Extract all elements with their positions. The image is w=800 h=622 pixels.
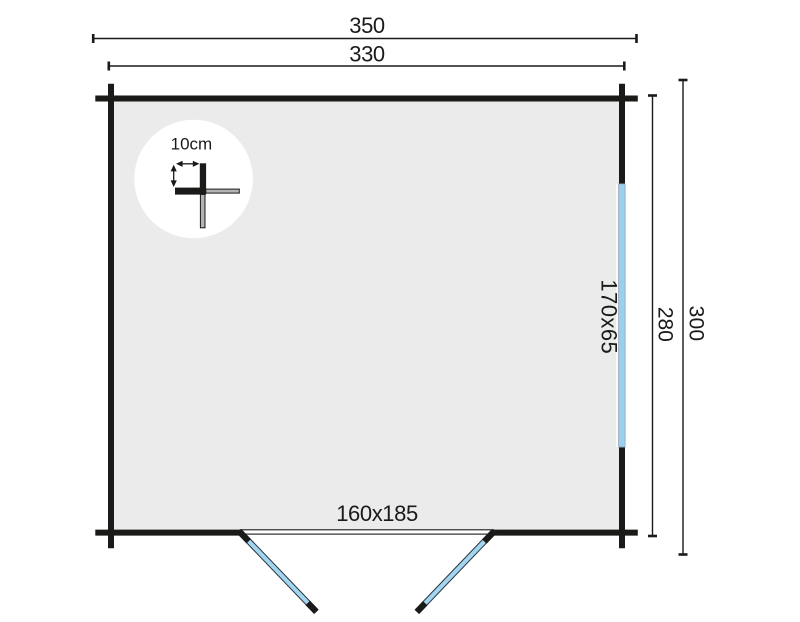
svg-text:170x65: 170x65 xyxy=(596,279,621,354)
svg-text:10cm: 10cm xyxy=(171,135,213,154)
svg-text:300: 300 xyxy=(684,306,707,342)
svg-text:330: 330 xyxy=(349,42,385,67)
svg-text:160x185: 160x185 xyxy=(336,501,418,526)
svg-text:280: 280 xyxy=(653,307,676,342)
svg-text:350: 350 xyxy=(349,13,385,38)
